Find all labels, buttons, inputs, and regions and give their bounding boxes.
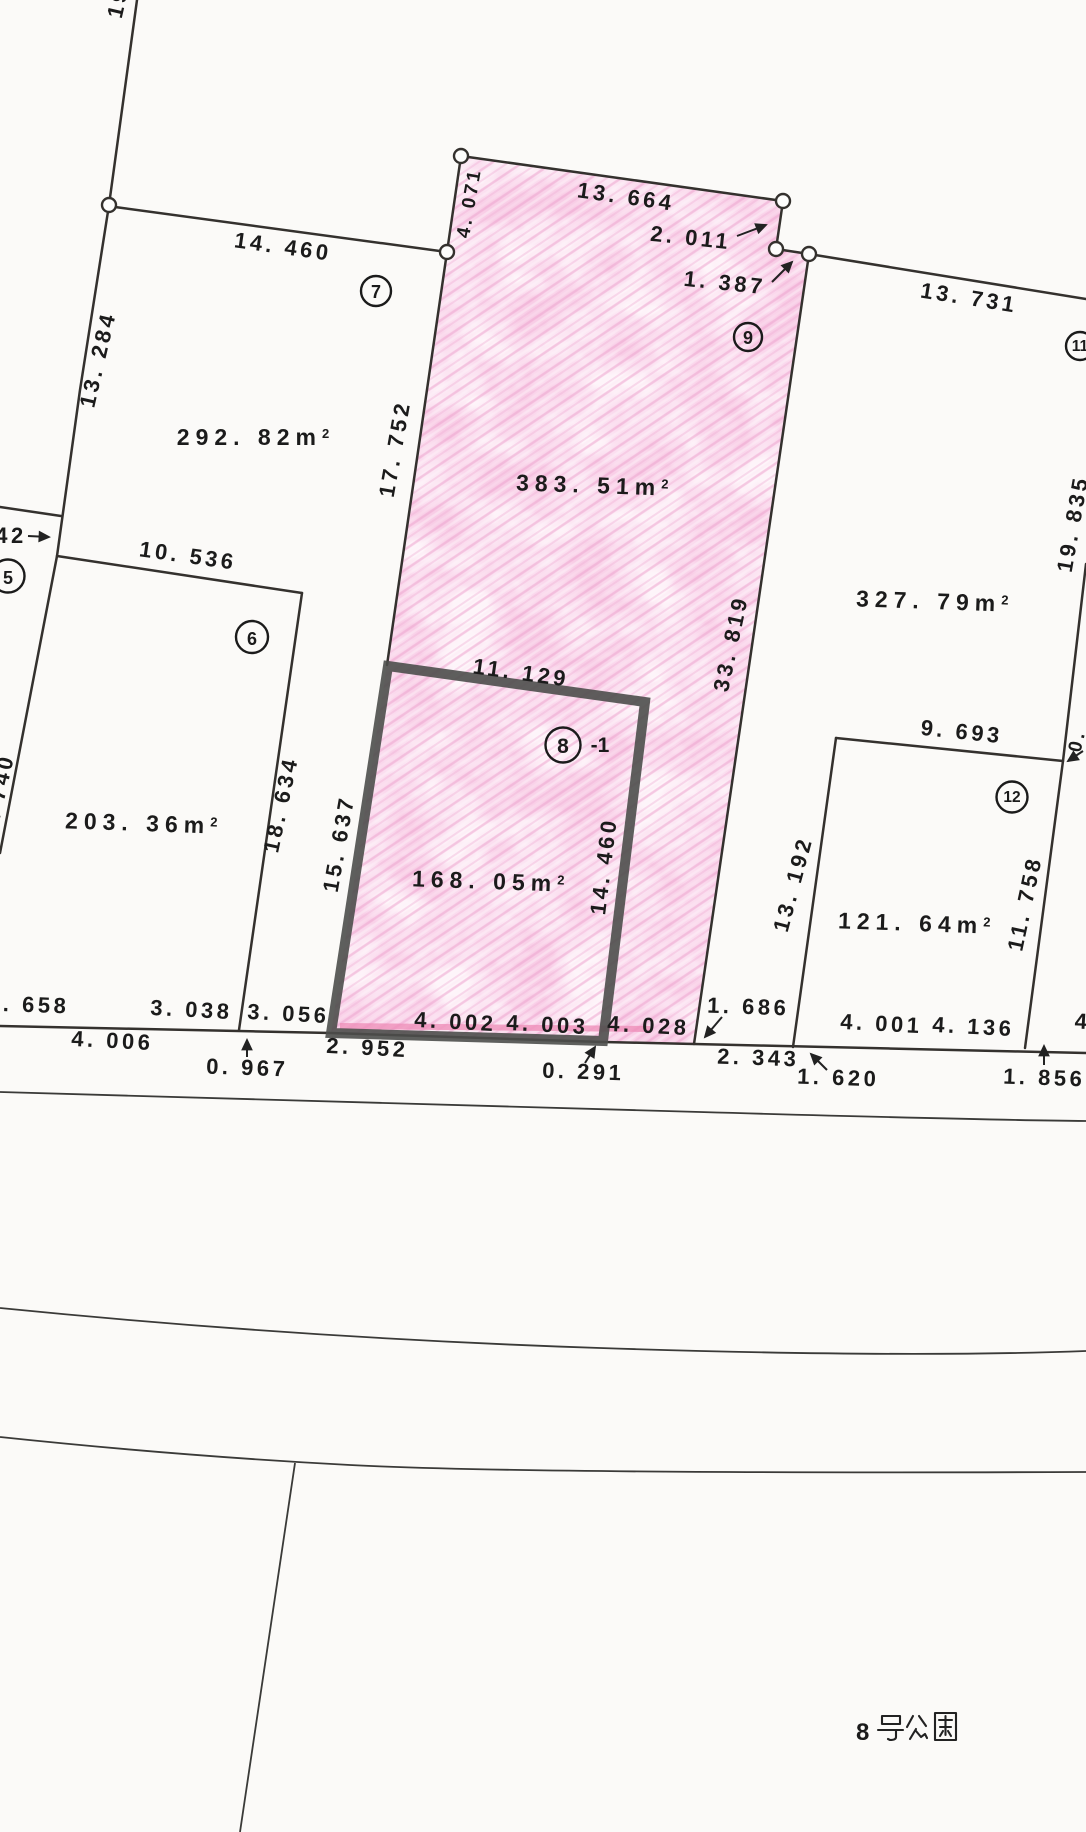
- svg-text:4. 006: 4. 006: [71, 1026, 154, 1055]
- svg-text:-1: -1: [591, 734, 610, 757]
- svg-text:4. 002: 4. 002: [414, 1007, 497, 1036]
- svg-text:0. 291: 0. 291: [542, 1058, 625, 1086]
- svg-text:4. 001: 4. 001: [840, 1009, 923, 1038]
- svg-text:4.: 4.: [1074, 1008, 1086, 1034]
- svg-text:6: 6: [247, 629, 257, 649]
- svg-text:1. 686: 1. 686: [707, 993, 790, 1021]
- svg-text:3. 038: 3. 038: [150, 995, 233, 1024]
- svg-text:2. 952: 2. 952: [326, 1033, 409, 1062]
- svg-text:168. 05m2: 168. 05m2: [412, 865, 565, 896]
- svg-text:3. 658: 3. 658: [0, 991, 70, 1019]
- svg-text:1. 620: 1. 620: [797, 1064, 880, 1092]
- svg-text:1. 856: 1. 856: [1003, 1064, 1086, 1092]
- svg-text:383. 51m2: 383. 51m2: [516, 469, 669, 500]
- svg-text:0. 967: 0. 967: [206, 1054, 289, 1082]
- svg-text:8: 8: [557, 735, 569, 758]
- svg-text:9: 9: [743, 328, 753, 348]
- svg-text:11: 11: [1072, 338, 1086, 355]
- svg-text:3. 056: 3. 056: [247, 999, 330, 1028]
- svg-text:2. 343: 2. 343: [717, 1044, 800, 1072]
- svg-text:7: 7: [371, 282, 381, 302]
- svg-text:4. 003: 4. 003: [506, 1010, 589, 1039]
- svg-text:5: 5: [3, 568, 13, 588]
- svg-text:42: 42: [0, 523, 27, 548]
- svg-text:4. 136: 4. 136: [932, 1012, 1015, 1041]
- svg-text:4. 028: 4. 028: [607, 1011, 690, 1040]
- svg-text:12: 12: [1003, 789, 1020, 806]
- svg-text:8: 8: [856, 1719, 869, 1746]
- svg-text:121. 64m2: 121. 64m2: [838, 907, 991, 938]
- svg-text:292. 82m2: 292. 82m2: [177, 424, 329, 450]
- svg-text:327. 79m2: 327. 79m2: [856, 585, 1009, 616]
- svg-text:203. 36m2: 203. 36m2: [65, 807, 218, 838]
